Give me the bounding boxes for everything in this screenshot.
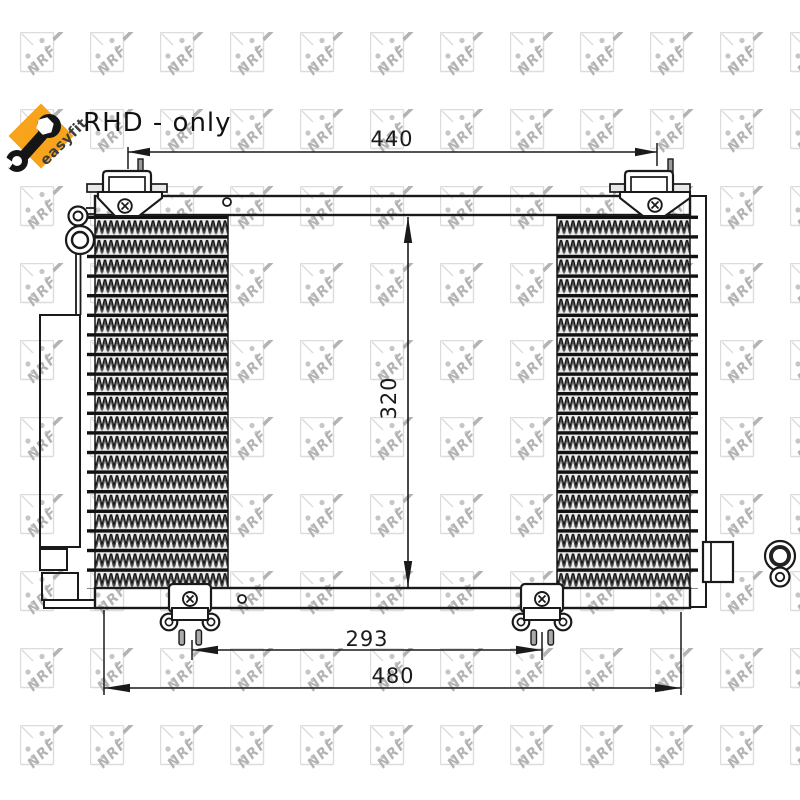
bottom-rail-hole (238, 595, 246, 603)
drier-block (703, 542, 733, 582)
dim-label-440: 440 (370, 127, 413, 151)
condenser-technical-drawing: NRF (0, 0, 800, 800)
tube-ends-left (87, 215, 95, 589)
tube-ends-right (690, 215, 698, 589)
fin-block-right (557, 215, 690, 588)
top-rail-hole (223, 198, 231, 206)
fin-block-left (95, 215, 228, 588)
dim-label-320: 320 (377, 376, 401, 419)
product-drawing-canvas: NRF (0, 0, 800, 800)
rhd-only-heading: RHD - only (83, 108, 232, 138)
left-pipe-fitting (66, 207, 95, 255)
dim-label-480: 480 (371, 664, 414, 688)
dim-label-293: 293 (345, 627, 388, 651)
